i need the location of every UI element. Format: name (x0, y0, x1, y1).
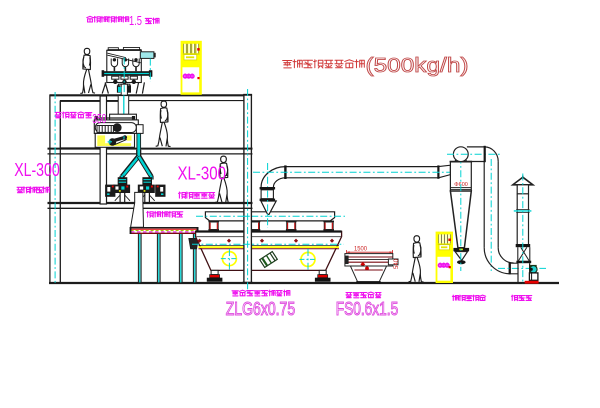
svg-text:XL-300: XL-300 (178, 163, 227, 183)
svg-text:XL-300: XL-300 (14, 160, 60, 180)
svg-text:1.5: 1.5 (129, 14, 142, 28)
svg-text:1500: 1500 (354, 247, 368, 253)
svg-text:(500kg/h): (500kg/h) (366, 55, 469, 77)
svg-text:540: 540 (394, 258, 400, 269)
svg-text:350: 350 (92, 111, 106, 126)
svg-text:ZLG6x0.75: ZLG6x0.75 (226, 299, 296, 319)
svg-text:FS0.6x1.5: FS0.6x1.5 (336, 299, 399, 319)
